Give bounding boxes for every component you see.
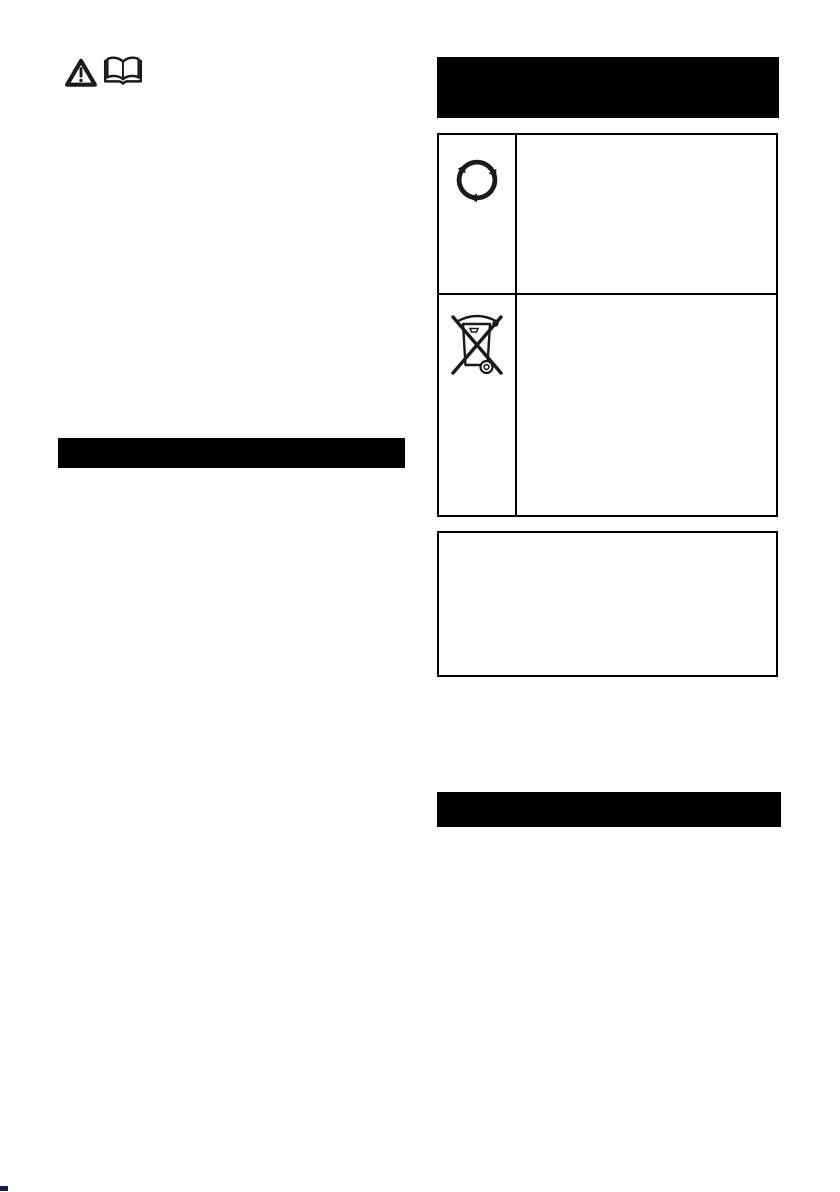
corner-print-mark (0, 1186, 8, 1191)
left-section-header-label (58, 438, 405, 446)
right-lower-section-header-bar (437, 792, 781, 827)
disposal-symbol-table (437, 133, 778, 517)
table-row (439, 135, 776, 293)
crossed-out-wheelie-bin-icon (450, 308, 504, 376)
manual-page (0, 0, 840, 1192)
right-header-bar (437, 57, 779, 118)
recycling-text (517, 135, 776, 293)
safety-pictograms (64, 52, 143, 89)
table-row (439, 293, 776, 515)
weee-text (517, 295, 776, 515)
note-box (437, 531, 778, 677)
left-section-header-bar (58, 438, 405, 468)
right-lower-section-header-label (437, 792, 781, 800)
recycling-cell (439, 135, 517, 293)
right-header-label (437, 57, 779, 65)
recycling-symbol-icon (445, 148, 509, 212)
weee-cell (439, 295, 517, 515)
open-book-icon (103, 52, 143, 89)
warning-triangle-icon (64, 57, 98, 89)
